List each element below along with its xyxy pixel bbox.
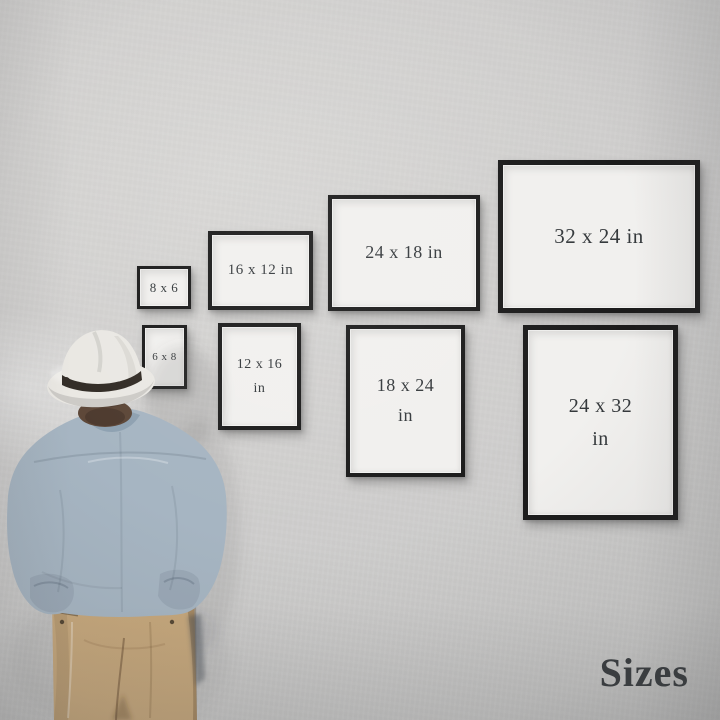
- size-text: 32 x 24 in: [554, 219, 644, 254]
- size-text: 24 x 18 in: [365, 238, 443, 268]
- size-text: 8 x 6: [150, 277, 179, 298]
- gallery-wall-scene: 8 x 6 16 x 12 in 24 x 18 in 32 x 24 in 6…: [0, 0, 720, 720]
- frame-size-label: 24 x 32 in: [569, 390, 633, 456]
- frame-18x24-portrait: 18 x 24 in: [346, 325, 465, 477]
- frame-size-label: 24 x 18 in: [365, 238, 443, 268]
- man-figure: [0, 320, 280, 720]
- frame-size-label: 32 x 24 in: [554, 219, 644, 254]
- frame-24x18-landscape: 24 x 18 in: [328, 195, 480, 311]
- frame-32x24-landscape: 32 x 24 in: [498, 160, 700, 313]
- pocket-button-left: [60, 620, 64, 624]
- sizes-caption: Sizes: [600, 649, 689, 696]
- hat-band-knot: [62, 377, 70, 385]
- pocket-button-right: [170, 620, 174, 624]
- frame-size-label: 16 x 12 in: [228, 258, 293, 283]
- size-text: 18 x 24: [377, 371, 435, 401]
- frame-size-label: 18 x 24 in: [377, 371, 435, 430]
- size-text: 16 x 12 in: [228, 258, 293, 283]
- size-unit: in: [377, 401, 435, 431]
- size-unit: in: [569, 423, 633, 456]
- frame-16x12-landscape: 16 x 12 in: [208, 231, 313, 310]
- frame-8x6-landscape: 8 x 6: [137, 266, 191, 309]
- size-text: 24 x 32: [569, 390, 633, 423]
- cuff-right: [158, 570, 200, 610]
- frame-24x32-portrait: 24 x 32 in: [523, 325, 678, 520]
- hat: [46, 330, 157, 411]
- frame-size-label: 8 x 6: [150, 277, 179, 298]
